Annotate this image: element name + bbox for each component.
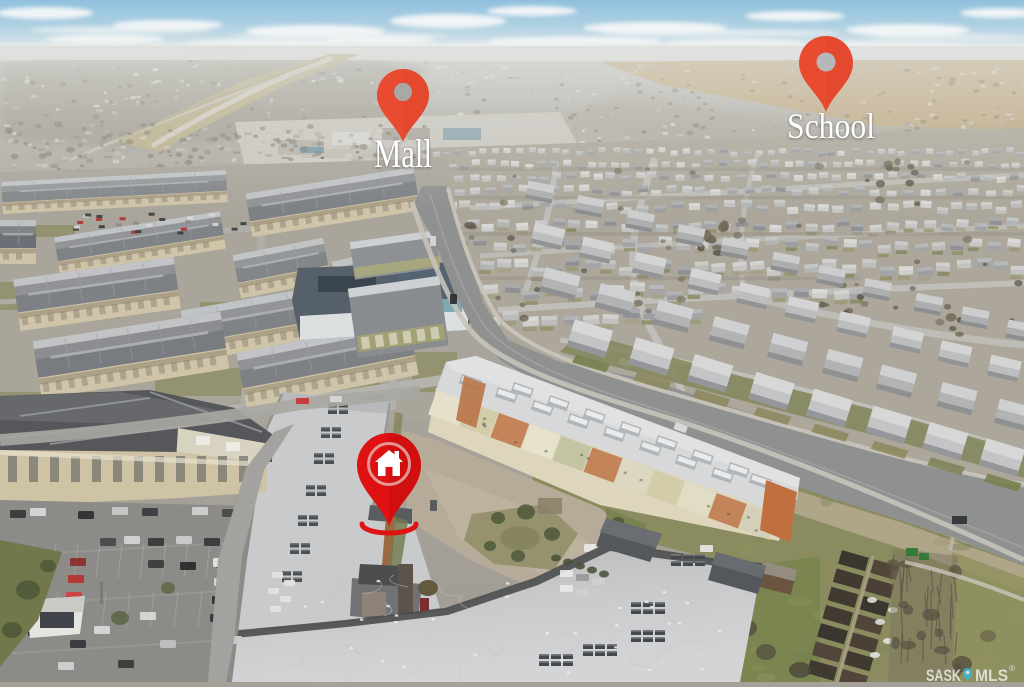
svg-text:®: ®: [1009, 664, 1015, 673]
svg-text:Mall: Mall: [374, 131, 432, 176]
svg-text:School: School: [787, 106, 875, 146]
svg-text:MLS: MLS: [975, 666, 1008, 682]
svg-text:SASK: SASK: [926, 666, 962, 682]
